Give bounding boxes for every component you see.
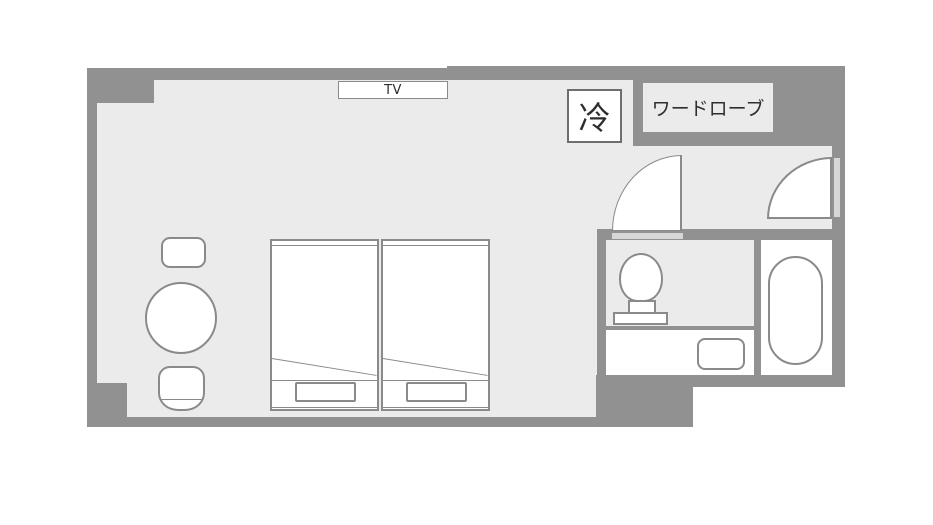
bathroom-divider-wall: [754, 229, 761, 375]
bed-blanket-line: [272, 380, 377, 381]
toilet-bowl: [619, 253, 663, 302]
door-threshold-bathroom: [612, 233, 683, 239]
wardrobe-label-box: ワードローブ: [643, 83, 773, 132]
chair-top: [161, 237, 206, 268]
bathroom-left-wall: [597, 229, 606, 387]
fridge-box: 冷: [567, 89, 622, 143]
pillow: [295, 382, 356, 402]
bathroom-bottom-wall: [597, 375, 845, 387]
tv-shelf: TV: [338, 81, 448, 99]
wardrobe-label: ワードローブ: [652, 94, 765, 121]
bed-head-line: [272, 245, 377, 246]
bed-blanket-line: [383, 380, 488, 381]
door-leaf-entrance: [834, 158, 840, 217]
bed-1: [270, 239, 379, 411]
bed-foot-line: [272, 407, 377, 408]
bed-blanket-diagonal: [383, 358, 488, 376]
round-table: [145, 282, 217, 354]
bed-head-line: [383, 245, 488, 246]
toilet-pedestal: [628, 300, 656, 314]
wall-left: [87, 68, 97, 427]
sink: [697, 338, 745, 370]
bed-blanket-diagonal: [272, 358, 377, 376]
bathtub: [768, 256, 823, 365]
tv-label: TV: [384, 83, 402, 98]
wall-right: [832, 66, 845, 387]
floorplan-canvas: TV 冷 ワードローブ: [0, 0, 933, 525]
wall-notch-top-left: [87, 68, 154, 103]
chair-back-line: [160, 399, 203, 400]
bed-foot-line: [383, 407, 488, 408]
fridge-label: 冷: [578, 93, 610, 139]
bed-2: [381, 239, 490, 411]
pillow: [406, 382, 467, 402]
chair-bottom: [158, 366, 205, 411]
